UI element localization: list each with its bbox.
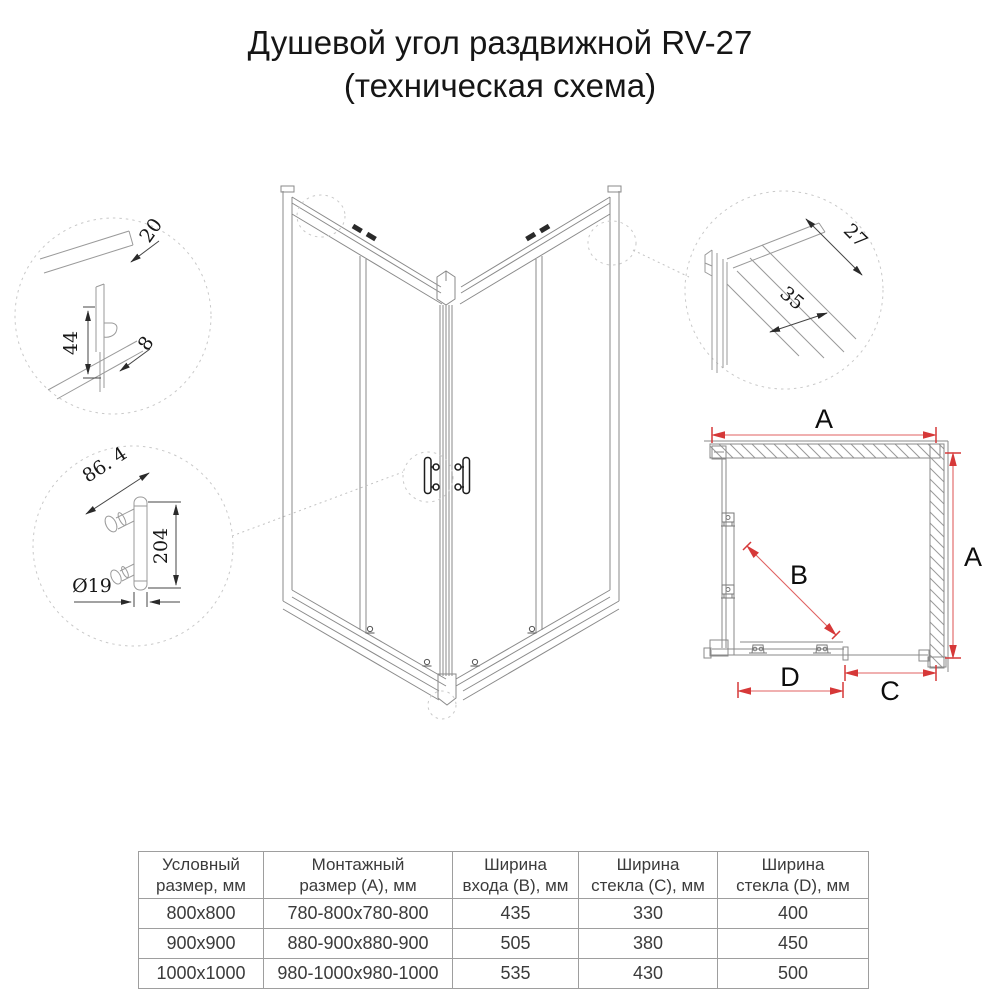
callout-blob-wall-profile xyxy=(588,221,636,265)
plan-view: A A B C D xyxy=(704,404,982,706)
table-cell: 435 xyxy=(453,899,579,929)
header-line: Ширина xyxy=(583,854,713,875)
header-line: Монтажный xyxy=(268,854,448,875)
callout-blob-bottom-guide xyxy=(428,691,456,719)
header-line: размер, мм xyxy=(143,875,259,896)
plan-label-a-top: A xyxy=(815,404,833,434)
dimensions-table: Условный размер, мм Монтажный размер (A)… xyxy=(138,851,869,989)
profile-depth-dim: 20 xyxy=(135,214,167,246)
plan-mount-icon xyxy=(721,513,735,598)
header-line: Условный xyxy=(143,854,259,875)
header-line: размер (A), мм xyxy=(268,875,448,896)
plan-wall-right xyxy=(930,444,944,668)
schematic-artwork: 20 44 8 86. 4 204 Ø19 27 35 xyxy=(0,0,1000,1000)
table-row: 800x800 780-800x780-800 435 330 400 xyxy=(139,899,869,929)
table-cell: 535 xyxy=(453,959,579,989)
header-line: Ширина xyxy=(722,854,864,875)
header-glass-c-width: Ширина стекла (C), мм xyxy=(579,852,718,899)
door-handle-right xyxy=(455,458,470,494)
plan-dimension-d: D xyxy=(738,662,843,698)
table-cell: 430 xyxy=(579,959,718,989)
header-nominal-size: Условный размер, мм xyxy=(139,852,264,899)
header-line: стекла (C), мм xyxy=(583,875,713,896)
plan-dimension-c: C xyxy=(845,665,936,706)
detail-top-rail-profile: 20 44 8 xyxy=(15,214,211,414)
handle-offset-dim: 86. 4 xyxy=(78,443,131,488)
table-header-row: Условный размер, мм Монтажный размер (A)… xyxy=(139,852,869,899)
table-cell: 780-800x780-800 xyxy=(264,899,453,929)
plan-label-d: D xyxy=(780,662,800,692)
handle-length-dim: 204 xyxy=(150,528,172,564)
table-cell: 800x800 xyxy=(139,899,264,929)
table-cell: 1000x1000 xyxy=(139,959,264,989)
plan-label-a-right: A xyxy=(964,542,982,572)
header-line: стекла (D), мм xyxy=(722,875,864,896)
wall-profile-width-dim: 35 xyxy=(776,282,809,314)
plan-label-c: C xyxy=(880,676,900,706)
table-cell: 505 xyxy=(453,929,579,959)
detail-handle: 86. 4 204 Ø19 xyxy=(33,443,233,646)
table-cell: 400 xyxy=(718,899,869,929)
callout-connector-handle xyxy=(232,472,403,536)
plan-dimension-a-right: A xyxy=(945,453,982,658)
table-row: 900x900 880-900x880-900 505 380 450 xyxy=(139,929,869,959)
technical-schematic-page: { "title": { "line1": "Душевой угол разд… xyxy=(0,0,1000,1000)
profile-gap-dim: 8 xyxy=(134,332,159,355)
shower-3d-drawing xyxy=(232,186,689,719)
plan-label-b: B xyxy=(790,560,808,590)
header-line: Ширина xyxy=(457,854,574,875)
plan-dimension-a-top: A xyxy=(712,404,936,443)
header-line: входа (B), мм xyxy=(457,875,574,896)
plan-dimension-b: B xyxy=(743,542,840,639)
rail-clamp-icon xyxy=(352,224,551,241)
door-handle-left xyxy=(425,458,440,494)
detail-wall-profile: 27 35 xyxy=(685,191,883,389)
plan-wall-top xyxy=(710,444,940,458)
handle-diameter-dim: Ø19 xyxy=(72,575,112,597)
wall-profile-depth-dim: 27 xyxy=(839,219,872,252)
table-cell: 450 xyxy=(718,929,869,959)
table-cell: 980-1000x980-1000 xyxy=(264,959,453,989)
header-glass-d-width: Ширина стекла (D), мм xyxy=(718,852,869,899)
header-mounting-size: Монтажный размер (A), мм xyxy=(264,852,453,899)
table-cell: 500 xyxy=(718,959,869,989)
table-cell: 380 xyxy=(579,929,718,959)
roller-icon xyxy=(366,626,537,666)
profile-height-dim: 44 xyxy=(60,331,82,355)
table-cell: 330 xyxy=(579,899,718,929)
header-entry-width: Ширина входа (B), мм xyxy=(453,852,579,899)
table-cell: 900x900 xyxy=(139,929,264,959)
table-row: 1000x1000 980-1000x980-1000 535 430 500 xyxy=(139,959,869,989)
table-cell: 880-900x880-900 xyxy=(264,929,453,959)
callout-connector-wall xyxy=(633,250,689,277)
